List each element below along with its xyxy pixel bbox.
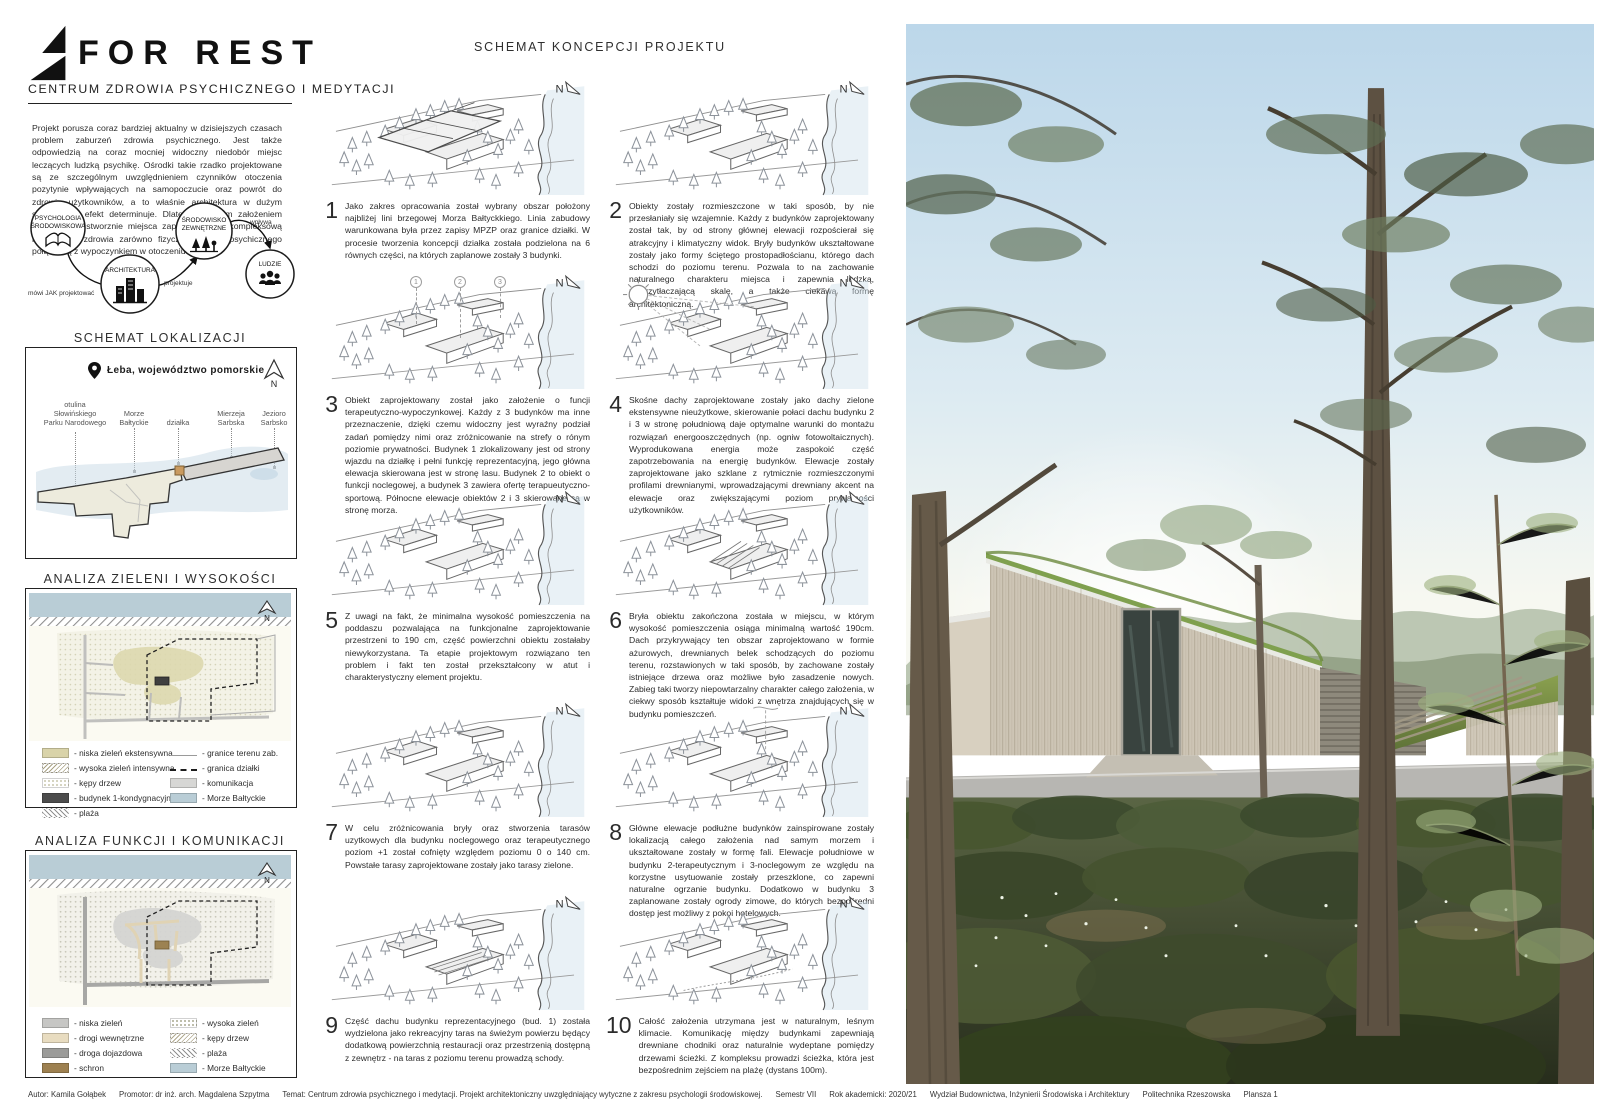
glass-entrance — [1122, 609, 1180, 755]
concept-sketch-8 — [606, 700, 874, 818]
map-label-jezioro: Jezioro Sarbsko — [252, 409, 296, 427]
concept-item-4: 4Skośne dachy zaprojektowane zostały jak… — [606, 272, 874, 516]
legend-label: - granice terenu zab. — [202, 748, 278, 758]
svg-text:LUDZIE: LUDZIE — [259, 261, 282, 268]
building-marker-2: 2 — [454, 276, 466, 338]
legend-label: - kępy drzew — [202, 1033, 249, 1043]
concept-item-10: 10Całość założenia utrzymana jest w natu… — [606, 893, 874, 1076]
legend-swatch — [170, 755, 197, 756]
footer-semester: Semestr VII — [776, 1090, 817, 1099]
concept-sketch-5 — [322, 488, 590, 606]
logo: FOR REST — [28, 24, 322, 82]
svg-text:N: N — [264, 876, 270, 885]
item-text: W celu zróżnicowania bryły oraz stworzen… — [345, 822, 590, 871]
legend-swatch — [42, 793, 69, 803]
project-render-image — [906, 24, 1594, 1084]
functions-analysis-map: N - niska zieleń - drogi wewnętrzne - dr… — [25, 850, 297, 1078]
footer-promoter: Promotor: dr inż. arch. Magdalena Szpytm… — [119, 1090, 269, 1099]
map-label-morze: Morze Bałtyckie — [110, 409, 158, 427]
svg-text:N: N — [271, 379, 278, 388]
logo-tree-icon — [28, 24, 68, 82]
concept-sketch-10 — [606, 893, 874, 1011]
item-number: 10 — [606, 1015, 632, 1076]
site-marker — [175, 466, 184, 475]
concept-item-6: 6Bryła obiektu zakończona została w miej… — [606, 488, 874, 720]
legend-swatch — [170, 1018, 197, 1028]
legend-label: - komunikacja — [202, 778, 253, 788]
legend-label: - schron — [74, 1063, 104, 1073]
svg-text:ZEWNĘTRZNE: ZEWNĘTRZNE — [182, 225, 226, 232]
legend-label: - budynek 1-kondygnacyjny — [74, 793, 175, 803]
legend-swatch — [170, 778, 197, 788]
footer-credits: Autor: Kamila Gołąbek Promotor: dr inż. … — [28, 1090, 888, 1099]
item-text: Z uwagi na fakt, że minimalna wysokość p… — [345, 610, 590, 683]
concept-item-5: 5Z uwagi na fakt, że minimalna wysokość … — [322, 488, 590, 683]
legend-swatch — [42, 1048, 69, 1058]
legend-swatch — [42, 763, 69, 773]
legend-label: - Morze Bałtyckie — [202, 1063, 266, 1073]
concept-sketch-1 — [322, 78, 590, 196]
building-marker-1: 1 — [410, 276, 422, 324]
legend-label: - droga dojazdowa — [74, 1048, 142, 1058]
building-footprint — [155, 677, 169, 685]
map-pin-icon — [88, 362, 101, 379]
concept-item-8: 8Główne elewacje podłużne budynków zains… — [606, 700, 874, 920]
legend-label: - kępy drzew — [74, 778, 121, 788]
logo-text: FOR REST — [78, 34, 322, 73]
map-label-otulina: otulina Słowińskiego Parku Narodowego — [36, 400, 114, 427]
legend-swatch — [170, 1048, 197, 1058]
legend-swatch — [42, 1063, 69, 1073]
svg-text:ARCHITEKTURA: ARCHITEKTURA — [105, 267, 155, 274]
legend-swatch — [42, 748, 69, 758]
footer-university: Politechnika Rzeszowska — [1143, 1090, 1231, 1099]
concept-sketch-9 — [322, 893, 590, 1011]
board-subtitle: CENTRUM ZDROWIA PSYCHICZNEGO I MEDYTACJI — [28, 82, 292, 96]
item-number: 5 — [322, 610, 338, 683]
legend-swatch — [170, 1063, 197, 1073]
location-name: Łeba, województwo pomorskie — [107, 365, 265, 376]
greenery-analysis-map: N - niska zieleń ekstensywna - wysoka zi… — [25, 588, 297, 808]
item-text: Część dachu budynku reprezentacyjnego (b… — [345, 1015, 590, 1064]
item-text: Całość założenia utrzymana jest w natura… — [639, 1015, 874, 1076]
legend-swatch — [42, 1033, 69, 1043]
map-label-mierzeja: Mierzeja Sarbska — [206, 409, 256, 427]
item-text: Jako zakres opracowania został wybrany o… — [345, 200, 590, 261]
legend-swatch — [42, 1018, 69, 1028]
header-divider — [28, 103, 292, 104]
legend-label: - drogi wewnętrzne — [74, 1033, 144, 1043]
legend-label: - plaża — [74, 808, 99, 818]
item-number: 1 — [322, 200, 338, 261]
item-number: 7 — [322, 822, 338, 871]
item-number: 9 — [322, 1015, 338, 1064]
presentation-board: FOR REST CENTRUM ZDROWIA PSYCHICZNEGO I … — [0, 0, 1600, 1120]
location-map-drawing — [30, 444, 292, 554]
svg-text:projektuje: projektuje — [164, 280, 193, 287]
legend-label: - wysoka zieleń — [202, 1018, 259, 1028]
legend-swatch — [170, 1033, 197, 1043]
greenery-map-drawing: N — [29, 593, 291, 741]
legend-swatch — [42, 778, 69, 788]
greenery-legend: - niska zieleń ekstensywna - wysoka ziel… — [42, 747, 288, 819]
location-map: Łeba, województwo pomorskie N otulina Sł… — [25, 347, 297, 559]
concept-sketch-4 — [606, 272, 874, 390]
functions-legend: - niska zieleń - drogi wewnętrzne - drog… — [42, 1017, 288, 1074]
svg-text:mówi JAK projektować: mówi JAK projektować — [28, 290, 95, 297]
concept-schema-title: SCHEMAT KONCEPCJI PROJEKTU — [320, 40, 880, 54]
svg-text:wpływa: wpływa — [249, 219, 272, 226]
footer-year: Rok akademicki: 2020/21 — [829, 1090, 917, 1099]
svg-text:N: N — [264, 614, 270, 623]
north-arrow-icon: N — [262, 358, 286, 388]
footer-author: Autor: Kamila Gołąbek — [28, 1090, 106, 1099]
legend-label: - Morze Bałtyckie — [202, 793, 266, 803]
footer-sheet: Plansza 1 — [1244, 1090, 1278, 1099]
footer-topic: Temat: Centrum zdrowia psychicznego i me… — [282, 1090, 762, 1099]
concept-sketch-7 — [322, 700, 590, 818]
concept-sketch-2 — [606, 78, 874, 196]
footer-faculty: Wydział Budownictwa, Inżynierii Środowis… — [930, 1090, 1130, 1099]
concept-flow-diagram: PSYCHOLOGIA ŚRODOWISKOWA ARCHITEKTURA ŚR… — [16, 198, 304, 330]
shelter-footprint — [155, 941, 169, 949]
legend-label: - wysoka zieleń intensywna — [74, 763, 175, 773]
legend-label: - niska zieleń — [74, 1018, 122, 1028]
svg-text:ŚRODOWISKOWA: ŚRODOWISKOWA — [31, 221, 87, 230]
map-label-dzialka: działka — [157, 418, 199, 427]
legend-label: - granica działki — [202, 763, 260, 773]
functions-map-drawing: N — [29, 855, 291, 1007]
legend-swatch — [170, 793, 197, 803]
concept-item-1: 1Jako zakres opracowania został wybrany … — [322, 78, 590, 261]
concept-item-9: 9Część dachu budynku reprezentacyjnego (… — [322, 893, 590, 1064]
legend-swatch — [42, 808, 69, 818]
location-map-title: SCHEMAT LOKALIZACJI — [25, 331, 295, 345]
concept-item-7: 7W celu zróżnicowania bryły oraz stworze… — [322, 700, 590, 871]
legend-swatch — [170, 769, 197, 771]
legend-label: - niska zieleń ekstensywna — [74, 748, 173, 758]
concept-item-3: 1 2 3 3Obiekt zaprojektowany został jako… — [322, 272, 590, 516]
svg-text:PSYCHOLOGIA: PSYCHOLOGIA — [35, 215, 82, 222]
concept-sketch-6 — [606, 488, 874, 606]
legend-label: - plaża — [202, 1048, 227, 1058]
building-marker-3: 3 — [494, 276, 506, 318]
svg-text:ŚRODOWISKO: ŚRODOWISKO — [182, 215, 227, 224]
